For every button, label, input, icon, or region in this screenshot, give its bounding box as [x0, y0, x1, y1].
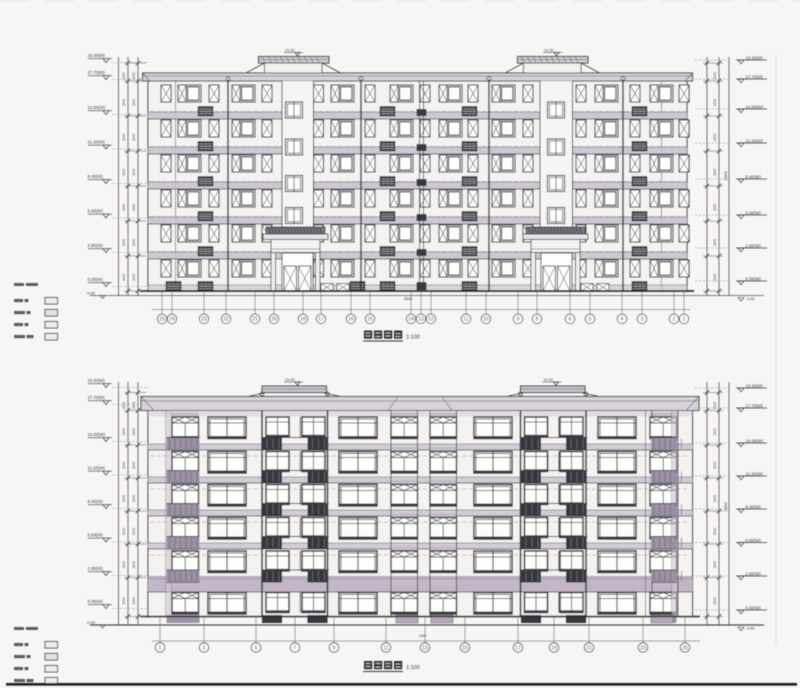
svg-text:13: 13 — [422, 645, 428, 651]
svg-text:19.30: 19.30 — [544, 49, 554, 53]
svg-text:11: 11 — [383, 645, 388, 651]
svg-text:1:100: 1:100 — [406, 665, 420, 671]
svg-text:14.00(W): 14.00(W) — [746, 105, 764, 110]
svg-text:19.30: 19.30 — [544, 378, 554, 382]
svg-text:6: 6 — [569, 317, 572, 323]
svg-text:25: 25 — [682, 645, 688, 651]
svg-text:5.60(W): 5.60(W) — [746, 211, 762, 216]
svg-text:2800: 2800 — [713, 239, 717, 247]
svg-text:5: 5 — [255, 645, 258, 651]
svg-text:2.80(W): 2.80(W) — [88, 566, 104, 571]
svg-text:2800: 2800 — [713, 274, 717, 282]
svg-text:11.20(W): 11.20(W) — [88, 466, 106, 471]
svg-text:17.70(M): 17.70(M) — [88, 395, 106, 400]
svg-text:2800: 2800 — [713, 428, 717, 436]
svg-text:2800: 2800 — [713, 72, 717, 80]
svg-text:2800: 2800 — [713, 169, 717, 177]
svg-text:23: 23 — [640, 645, 646, 651]
svg-text:2800: 2800 — [122, 561, 126, 569]
svg-text:2800: 2800 — [132, 274, 136, 282]
svg-text:17.70(M): 17.70(M) — [746, 404, 764, 409]
svg-text:2.80(W): 2.80(W) — [746, 572, 762, 577]
svg-text:8: 8 — [536, 317, 539, 323]
svg-text:2800: 2800 — [122, 239, 126, 247]
svg-text:7: 7 — [294, 645, 297, 651]
svg-text:2800: 2800 — [132, 402, 136, 410]
svg-text:19.30(M): 19.30(M) — [88, 53, 106, 58]
svg-text:2800: 2800 — [122, 169, 126, 177]
svg-text:16: 16 — [348, 317, 354, 323]
svg-text:19.30(M): 19.30(M) — [746, 384, 764, 389]
svg-text:21: 21 — [586, 645, 592, 651]
svg-text:2800: 2800 — [122, 274, 126, 282]
svg-text:2800: 2800 — [132, 462, 136, 470]
svg-text:-0.60: -0.60 — [86, 291, 96, 296]
svg-text:0.00(W): 0.00(W) — [746, 277, 762, 282]
svg-text:2800: 2800 — [713, 99, 717, 107]
svg-text:2800: 2800 — [122, 99, 126, 107]
svg-text:17: 17 — [515, 645, 521, 651]
svg-text:13: 13 — [418, 317, 424, 323]
svg-text:9: 9 — [333, 645, 336, 651]
svg-text:2800: 2800 — [713, 597, 717, 605]
svg-text:2800: 2800 — [122, 528, 126, 536]
svg-text:2800: 2800 — [122, 428, 126, 436]
svg-text:3: 3 — [203, 645, 206, 651]
svg-text:14.00(W): 14.00(W) — [746, 439, 764, 444]
svg-text:1: 1 — [683, 317, 686, 323]
svg-text:2800: 2800 — [132, 495, 136, 503]
svg-text:10: 10 — [483, 317, 489, 323]
svg-text:2.80(W): 2.80(W) — [746, 244, 762, 249]
svg-text:14.00(W): 14.00(W) — [88, 432, 106, 437]
svg-text:2800: 2800 — [132, 169, 136, 177]
svg-text:11.20(W): 11.20(W) — [746, 139, 764, 144]
svg-text:20: 20 — [271, 317, 277, 323]
svg-text:16800: 16800 — [724, 171, 728, 181]
svg-text:2800: 2800 — [713, 561, 717, 569]
svg-text:8.40(W): 8.40(W) — [746, 175, 762, 180]
svg-text:-0.60: -0.60 — [746, 297, 755, 301]
svg-text:2: 2 — [673, 317, 676, 323]
svg-text:8.40(W): 8.40(W) — [746, 505, 762, 510]
svg-text:12: 12 — [428, 317, 434, 323]
svg-text:22: 22 — [223, 317, 229, 323]
svg-text:2800: 2800 — [122, 134, 126, 142]
svg-text:14.00(W): 14.00(W) — [88, 105, 106, 110]
svg-text:19.30: 19.30 — [285, 378, 295, 382]
svg-text:2800: 2800 — [713, 528, 717, 536]
svg-text:2800: 2800 — [132, 134, 136, 142]
svg-text:0.00(W): 0.00(W) — [746, 606, 762, 611]
svg-text:11.20(W): 11.20(W) — [746, 472, 764, 477]
svg-text:3: 3 — [641, 317, 644, 323]
svg-text:21: 21 — [252, 317, 258, 323]
svg-text:2800: 2800 — [132, 239, 136, 247]
svg-text:2800: 2800 — [122, 495, 126, 503]
svg-text:2800: 2800 — [132, 72, 136, 80]
svg-text:17: 17 — [318, 317, 324, 323]
svg-text:0.00(W): 0.00(W) — [88, 277, 104, 282]
svg-text:17.70(M): 17.70(M) — [746, 75, 764, 80]
svg-text:1500: 1500 — [419, 634, 427, 638]
svg-text:2800: 2800 — [713, 204, 717, 212]
svg-text:2800: 2800 — [132, 561, 136, 569]
svg-text:11.20(W): 11.20(W) — [88, 140, 106, 145]
svg-text:2.80(W): 2.80(W) — [88, 243, 104, 248]
svg-text:2800: 2800 — [132, 597, 136, 605]
svg-text:2800: 2800 — [132, 204, 136, 212]
svg-text:2800: 2800 — [122, 597, 126, 605]
svg-text:15: 15 — [367, 317, 373, 323]
svg-text:2800: 2800 — [122, 462, 126, 470]
svg-text:2800: 2800 — [122, 204, 126, 212]
svg-text:19.30: 19.30 — [285, 49, 295, 53]
svg-text:4: 4 — [621, 317, 624, 323]
svg-text:5.60(W): 5.60(W) — [88, 209, 104, 214]
svg-text:23: 23 — [201, 317, 207, 323]
svg-text:2800: 2800 — [122, 402, 126, 410]
svg-text:19: 19 — [551, 645, 557, 651]
svg-text:1:100: 1:100 — [406, 335, 420, 341]
svg-text:8.40(W): 8.40(W) — [88, 499, 104, 504]
svg-text:8.40(W): 8.40(W) — [88, 174, 104, 179]
svg-text:5500: 5500 — [404, 297, 412, 301]
svg-text:2800: 2800 — [132, 428, 136, 436]
svg-text:0.00(W): 0.00(W) — [88, 599, 104, 604]
svg-text:2800: 2800 — [132, 528, 136, 536]
svg-text:18: 18 — [300, 317, 306, 323]
svg-text:1: 1 — [159, 645, 162, 651]
svg-text:2800: 2800 — [132, 99, 136, 107]
svg-text:14: 14 — [408, 317, 414, 323]
svg-text:11: 11 — [463, 317, 468, 323]
svg-text:2800: 2800 — [713, 462, 717, 470]
svg-text:15: 15 — [462, 645, 468, 651]
svg-text:-0.60: -0.60 — [86, 620, 96, 625]
svg-text:16800: 16800 — [724, 502, 728, 512]
svg-text:17.70(M): 17.70(M) — [88, 70, 106, 75]
svg-text:-0.60: -0.60 — [746, 627, 755, 631]
svg-text:9: 9 — [517, 317, 520, 323]
svg-text:2800: 2800 — [713, 495, 717, 503]
svg-text:19.30(M): 19.30(M) — [746, 56, 764, 61]
svg-text:2800: 2800 — [122, 72, 126, 80]
svg-text:19.30(M): 19.30(M) — [88, 378, 106, 383]
svg-text:5.60(W): 5.60(W) — [746, 538, 762, 543]
svg-text:25: 25 — [159, 317, 165, 323]
svg-text:5.60(W): 5.60(W) — [88, 533, 104, 538]
svg-text:24: 24 — [169, 317, 175, 323]
svg-text:2800: 2800 — [713, 134, 717, 142]
svg-text:5: 5 — [589, 317, 592, 323]
